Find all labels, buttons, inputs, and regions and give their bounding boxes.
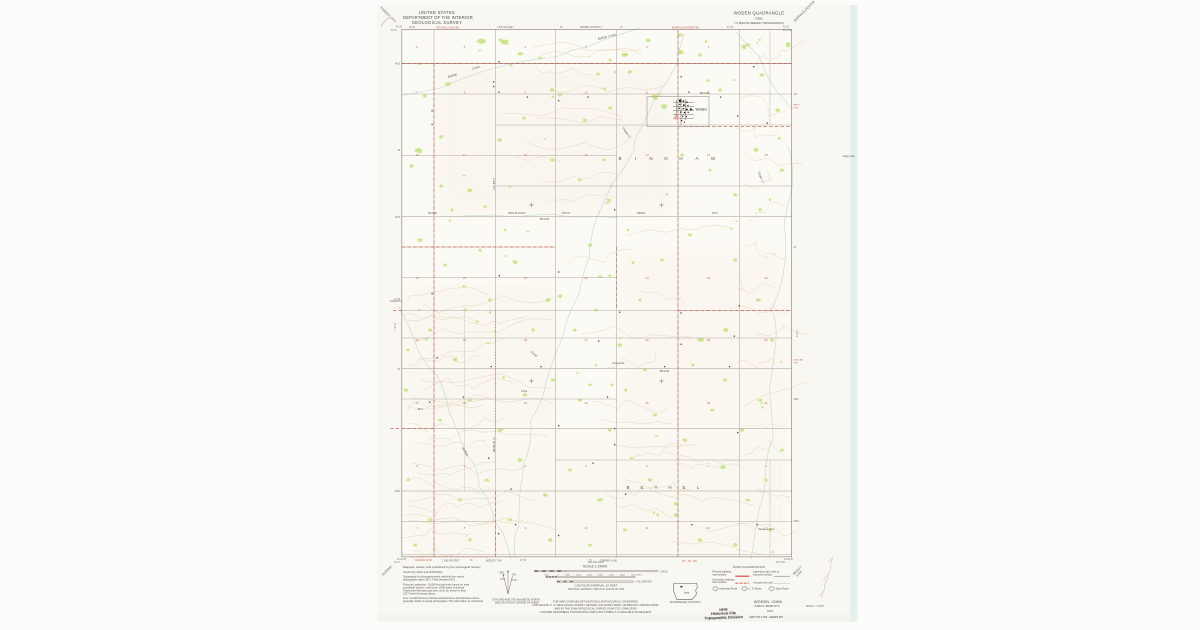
svg-text:9 MI.: 9 MI.: [794, 363, 799, 365]
svg-text:17: 17: [463, 153, 467, 157]
svg-text:GN: GN: [512, 573, 516, 577]
svg-text:MN: MN: [499, 571, 503, 575]
svg-text:000m: 000m: [794, 521, 800, 523]
svg-text:Eagle Lake: Eagle Lake: [843, 155, 856, 158]
svg-text:MAR 1 7 1975: MAR 1 7 1975: [806, 604, 824, 608]
svg-text:Iowa: Iowa: [684, 592, 690, 595]
svg-text:IOWA: IOWA: [755, 16, 762, 20]
svg-text:11: 11: [645, 91, 648, 95]
svg-text:7.5 MINUTE SERIES (TOPOGRAPHIC: 7.5 MINUTE SERIES (TOPOGRAPHIC): [734, 21, 784, 25]
svg-text:43 30: 43 30: [396, 27, 402, 29]
svg-text:Twelvemile: Twelvemile: [612, 362, 625, 365]
svg-text:0 51: 0 51: [500, 577, 506, 581]
svg-text:generally visible on aerial ph: generally visible on aerial photographs.…: [403, 599, 484, 603]
svg-text:M: M: [711, 156, 715, 161]
svg-text:DITCH: DITCH: [562, 212, 570, 215]
svg-text:30: 30: [764, 338, 768, 342]
svg-text:State Route: State Route: [776, 588, 790, 591]
svg-text:C R I B B S: C R I B B S: [494, 178, 496, 190]
svg-text:SCALE 1:24000: SCALE 1:24000: [583, 565, 607, 569]
svg-text:25: 25: [707, 338, 711, 342]
svg-text:CORWITH: CORWITH: [390, 300, 402, 303]
svg-text:31: 31: [415, 401, 419, 405]
svg-text:BM 1198: BM 1198: [660, 371, 670, 373]
svg-text:22: 22: [584, 276, 588, 280]
svg-text:Burt: Burt: [418, 408, 423, 411]
svg-text:600 000 FEET: 600 000 FEET: [588, 561, 605, 564]
svg-text:3000: 3000: [587, 574, 593, 576]
svg-text:36: 36: [707, 401, 711, 405]
svg-text:24: 24: [707, 276, 711, 280]
svg-text:35: 35: [645, 401, 649, 405]
svg-text:32: 32: [463, 401, 467, 405]
svg-text:1972: 1972: [767, 609, 773, 613]
svg-text:AMS 7371 II NW—SERIES 878: AMS 7371 II NW—SERIES 878: [749, 616, 783, 619]
svg-text:1 MILE: 1 MILE: [660, 571, 668, 574]
svg-text:BUFFALO CENTER 9 MI.: BUFFALO CENTER 9 MI.: [672, 26, 700, 29]
svg-text:G: G: [664, 156, 668, 161]
svg-text:8 MI.: 8 MI.: [794, 108, 799, 110]
svg-text:31: 31: [764, 401, 768, 405]
svg-text:1 340 000 FEET: 1 340 000 FEET: [442, 560, 460, 563]
svg-text:E: E: [682, 485, 685, 490]
svg-text:11: 11: [645, 526, 648, 530]
svg-text:improved surface: improved surface: [753, 573, 773, 576]
svg-text:I: I: [635, 156, 636, 161]
svg-text:7000 FEET: 7000 FEET: [631, 574, 643, 576]
svg-text:GEOLOGICAL SURVEY: GEOLOGICAL SURVEY: [412, 20, 463, 25]
svg-text:NATIONAL GEODETIC VERTICAL DAT: NATIONAL GEODETIC VERTICAL DATUM OF 1929: [568, 588, 625, 591]
svg-text:hard surface: hard surface: [713, 581, 728, 584]
svg-text:10: 10: [584, 91, 588, 95]
svg-text:H: H: [679, 156, 682, 161]
svg-text:47 30: 47 30: [727, 27, 733, 29]
svg-text:WODEN, IOWA: WODEN, IOWA: [754, 600, 782, 604]
svg-text:28: 28: [524, 338, 528, 342]
svg-text:SILVER: SILVER: [428, 212, 437, 215]
svg-text:Interstate Route: Interstate Route: [720, 588, 738, 591]
svg-text:WODEN (VICINITY): WODEN (VICINITY): [580, 26, 602, 29]
svg-text:4000: 4000: [598, 574, 604, 576]
svg-text:1000: 1000: [544, 574, 550, 576]
svg-text:CRYSTAL LAKE 4 MI.: CRYSTAL LAKE 4 MI.: [436, 26, 460, 29]
svg-text:30: 30: [415, 338, 419, 342]
svg-text:93 37 30: 93 37 30: [776, 562, 786, 564]
svg-text:THIS MAP COMPLIES WITH NATIONA: THIS MAP COMPLIES WITH NATIONAL MAP ACCU…: [553, 600, 638, 604]
svg-text:26: 26: [645, 338, 649, 342]
svg-text:N4322.5—W9337.5/7.5: N4322.5—W9337.5/7.5: [755, 605, 781, 608]
svg-text:E: E: [640, 485, 643, 490]
svg-text:Control by USGS and NOS/NOAA: Control by USGS and NOS/NOAA: [403, 570, 443, 574]
svg-text:34: 34: [584, 401, 588, 405]
svg-text:photographs taken 1971. Field: photographs taken 1971. Field checked 19…: [403, 578, 455, 582]
svg-text:18: 18: [764, 153, 768, 157]
svg-text:hard surface: hard surface: [713, 573, 728, 576]
svg-text:43 22 30: 43 22 30: [397, 559, 407, 561]
svg-text:BM 1205: BM 1205: [540, 219, 550, 221]
svg-text:B: B: [618, 156, 621, 161]
svg-text:94 15: 94 15: [391, 30, 397, 32]
svg-text:A: A: [695, 156, 698, 161]
svg-text:DUNCAN: DUNCAN: [794, 359, 804, 362]
svg-text:U. S. Route: U. S. Route: [749, 588, 763, 591]
svg-text:CONTOUR INTERVAL 10 FEET: CONTOUR INTERVAL 10 FEET: [575, 583, 618, 587]
svg-text:5000: 5000: [609, 574, 615, 576]
svg-text:21: 21: [524, 276, 528, 280]
svg-text:33: 33: [524, 401, 528, 405]
svg-text:94 15: 94 15: [394, 562, 400, 564]
svg-text:13: 13: [707, 153, 711, 157]
svg-text:1927 North American datum: 1927 North American datum: [403, 591, 435, 595]
svg-text:BRITT: BRITT: [794, 105, 801, 107]
svg-text:29: 29: [463, 338, 467, 342]
svg-text:B: B: [626, 485, 629, 490]
svg-text:Unimproved road: Unimproved road: [753, 582, 773, 585]
svg-text:19: 19: [415, 276, 419, 280]
svg-text:2000: 2000: [576, 574, 582, 576]
svg-text:Hawkeye Cem: Hawkeye Cem: [758, 528, 774, 531]
svg-text:23: 23: [645, 276, 649, 280]
svg-text:AND BY THE IOWA GEOLOGICAL SUR: AND BY THE IOWA GEOLOGICAL SURVEY, IOWA …: [555, 606, 638, 610]
svg-text:H: H: [668, 485, 671, 490]
svg-text:15: 15: [584, 153, 588, 157]
svg-text:T: T: [655, 485, 658, 490]
svg-text:93 37 30: 93 37 30: [783, 30, 793, 32]
svg-text:DRAIN NO 12: DRAIN NO 12: [493, 437, 496, 452]
svg-text:4815: 4815: [395, 64, 401, 66]
svg-text:52 30: 52 30: [409, 27, 415, 29]
svg-text:NO 5: NO 5: [712, 212, 718, 215]
svg-text:2 540 000 FEET: 2 540 000 FEET: [497, 27, 514, 29]
svg-text:Mapped, edited, and published: Mapped, edited, and published by the Geo…: [403, 565, 481, 569]
svg-text:BM 1214: BM 1214: [700, 93, 710, 95]
svg-text:T 97 N: T 97 N: [795, 330, 797, 337]
svg-text:20: 20: [463, 276, 467, 280]
svg-text:27: 27: [584, 338, 588, 342]
svg-text:T 97 N: T 97 N: [395, 323, 397, 330]
svg-text:43 22 30: 43 22 30: [784, 559, 794, 561]
svg-text:Trask: Trask: [521, 390, 528, 393]
svg-text:0 20: 0 20: [511, 578, 517, 582]
svg-text:ROAD CLASSIFICATION: ROAD CLASSIFICATION: [733, 565, 765, 569]
svg-text:6000: 6000: [620, 574, 626, 576]
svg-text:A FOLDER DESCRIBING TOPOGRAPHI: A FOLDER DESCRIBING TOPOGRAPHIC MAPS AND…: [539, 610, 652, 614]
svg-text:WODEN QUADRANGLE: WODEN QUADRANGLE: [734, 11, 785, 16]
svg-text:DRAIN: DRAIN: [637, 212, 645, 215]
svg-text:19: 19: [764, 276, 768, 280]
svg-text:47 30: 47 30: [520, 560, 526, 562]
svg-text:43 30: 43 30: [783, 27, 789, 29]
svg-text:4810: 4810: [395, 217, 401, 219]
svg-text:4802: 4802: [794, 399, 800, 401]
svg-text:10: 10: [584, 526, 588, 530]
svg-text:Woden: Woden: [696, 107, 707, 111]
svg-text:12: 12: [707, 526, 711, 530]
svg-text:WESLEY 7 MI.: WESLEY 7 MI.: [486, 560, 502, 563]
svg-text:16: 16: [524, 153, 528, 157]
svg-text:1 KILOMETER: 1 KILOMETER: [635, 581, 652, 584]
svg-text:18: 18: [415, 153, 419, 157]
svg-text:QUADRANGLE LOCATION: QUADRANGLE LOCATION: [670, 601, 701, 604]
svg-text:N: N: [649, 156, 652, 161]
svg-text:ALGONA 14 MI.: ALGONA 14 MI.: [415, 559, 432, 562]
svg-text:KING SLOUGH: KING SLOUGH: [508, 212, 526, 215]
svg-text:4800: 4800: [395, 491, 401, 493]
svg-text:FOR SALE BY U. S. GEOLOGICAL S: FOR SALE BY U. S. GEOLOGICAL SURVEY, DEN…: [533, 603, 660, 607]
svg-text:1000: 1000: [565, 574, 571, 576]
